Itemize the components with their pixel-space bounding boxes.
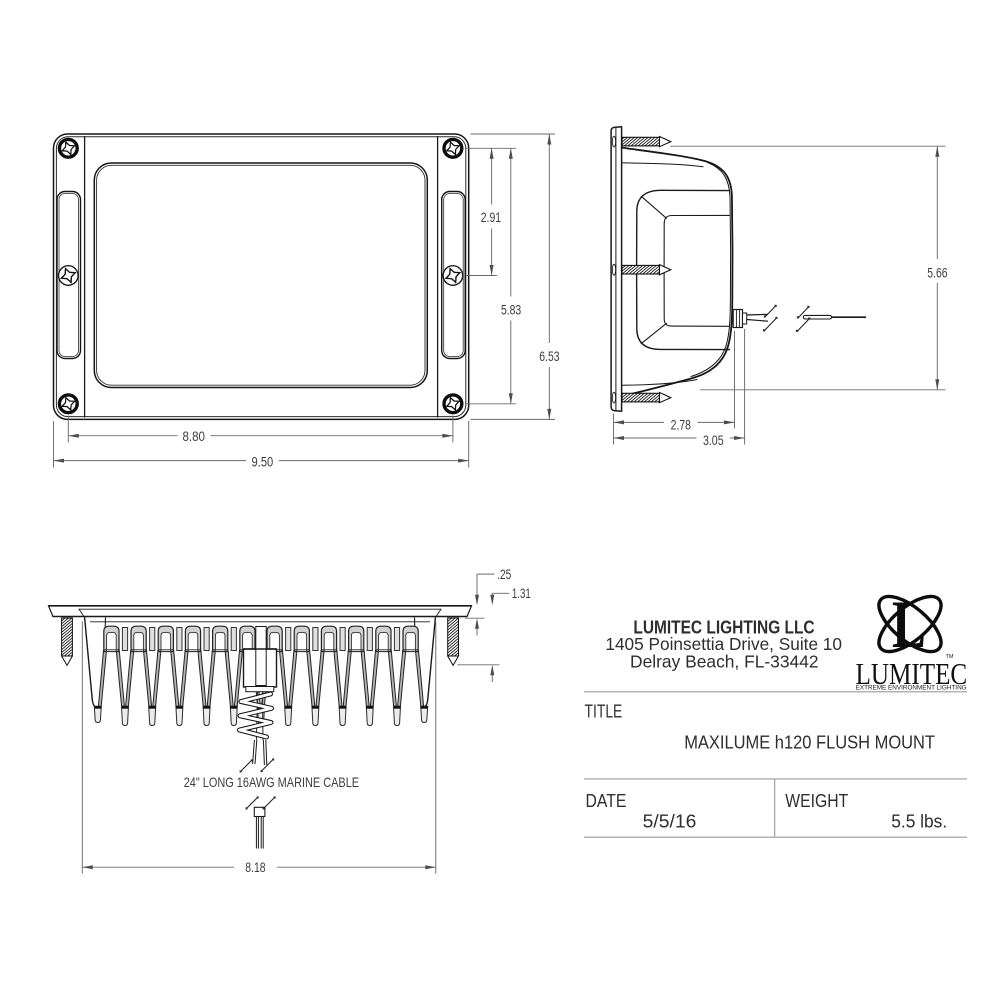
svg-text:L: L [892, 586, 926, 662]
svg-text:8.80: 8.80 [182, 429, 205, 444]
svg-text:.25: .25 [497, 567, 511, 582]
svg-text:2.78: 2.78 [671, 417, 692, 432]
svg-text:MAXILUME h120 FLUSH MOUNT: MAXILUME h120 FLUSH MOUNT [684, 732, 935, 753]
svg-text:1.31: 1.31 [512, 586, 531, 601]
svg-text:5.83: 5.83 [501, 303, 522, 318]
svg-text:Delray Beach, FL-33442: Delray Beach, FL-33442 [630, 652, 819, 672]
svg-text:DATE: DATE [586, 790, 627, 811]
svg-text:24" LONG 16AWG MARINE CABLE: 24" LONG 16AWG MARINE CABLE [184, 774, 359, 790]
svg-text:2.91: 2.91 [481, 210, 501, 225]
svg-text:8.18: 8.18 [245, 860, 266, 875]
svg-text:5.5 lbs.: 5.5 lbs. [891, 811, 947, 832]
svg-text:9.50: 9.50 [252, 454, 274, 469]
svg-text:3.05: 3.05 [703, 433, 724, 448]
svg-text:WEIGHT: WEIGHT [785, 790, 848, 811]
svg-text:5.66: 5.66 [927, 265, 948, 280]
svg-text:TITLE: TITLE [585, 701, 623, 722]
svg-text:EXTREME ENVIRONMENT LIGHTING: EXTREME ENVIRONMENT LIGHTING [856, 684, 967, 691]
svg-text:5/5/16: 5/5/16 [643, 811, 697, 832]
svg-text:6.53: 6.53 [539, 349, 560, 364]
